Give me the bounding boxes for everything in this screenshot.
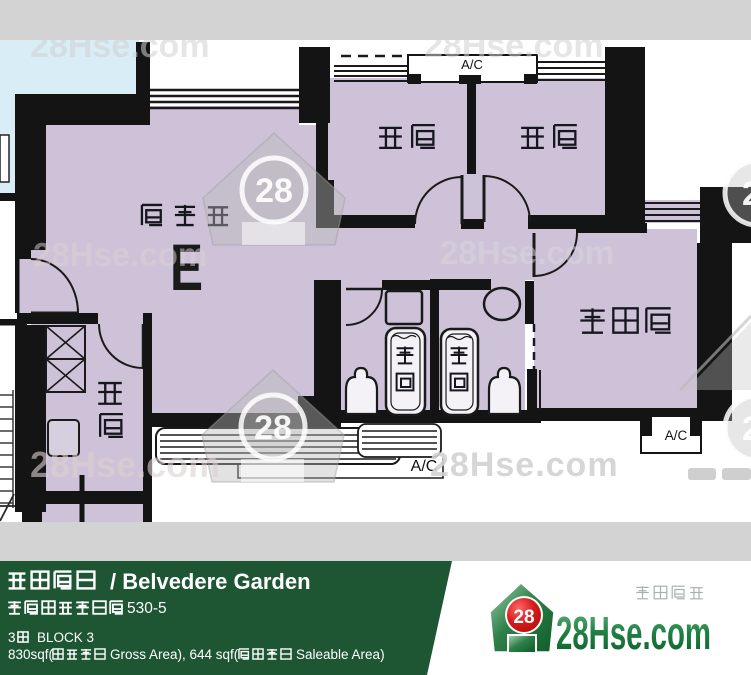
svg-text:28: 28 xyxy=(254,409,292,447)
svg-text:28Hse.com: 28Hse.com xyxy=(30,444,220,485)
svg-text:530-5: 530-5 xyxy=(127,600,167,617)
svg-text:A/C: A/C xyxy=(665,428,688,443)
svg-text:BLOCK 3: BLOCK 3 xyxy=(37,630,94,645)
svg-text:28Hse.com: 28Hse.com xyxy=(556,607,711,659)
svg-text:28Hse.com: 28Hse.com xyxy=(430,446,619,484)
svg-text:2: 2 xyxy=(742,410,751,448)
svg-text:3: 3 xyxy=(8,630,16,645)
svg-text:2: 2 xyxy=(742,175,751,213)
svg-text:28Hse.com: 28Hse.com xyxy=(33,236,207,273)
svg-text:28: 28 xyxy=(513,607,534,628)
svg-text:/ Belvedere Garden: / Belvedere Garden xyxy=(110,569,311,594)
svg-text:Saleable Area): Saleable Area) xyxy=(296,647,385,662)
svg-text:830sqf(: 830sqf( xyxy=(8,647,54,662)
svg-text:28: 28 xyxy=(255,172,293,210)
svg-text:Gross Area), 644 sqf(: Gross Area), 644 sqf( xyxy=(110,647,239,662)
svg-text:28Hse.com: 28Hse.com xyxy=(440,234,614,271)
